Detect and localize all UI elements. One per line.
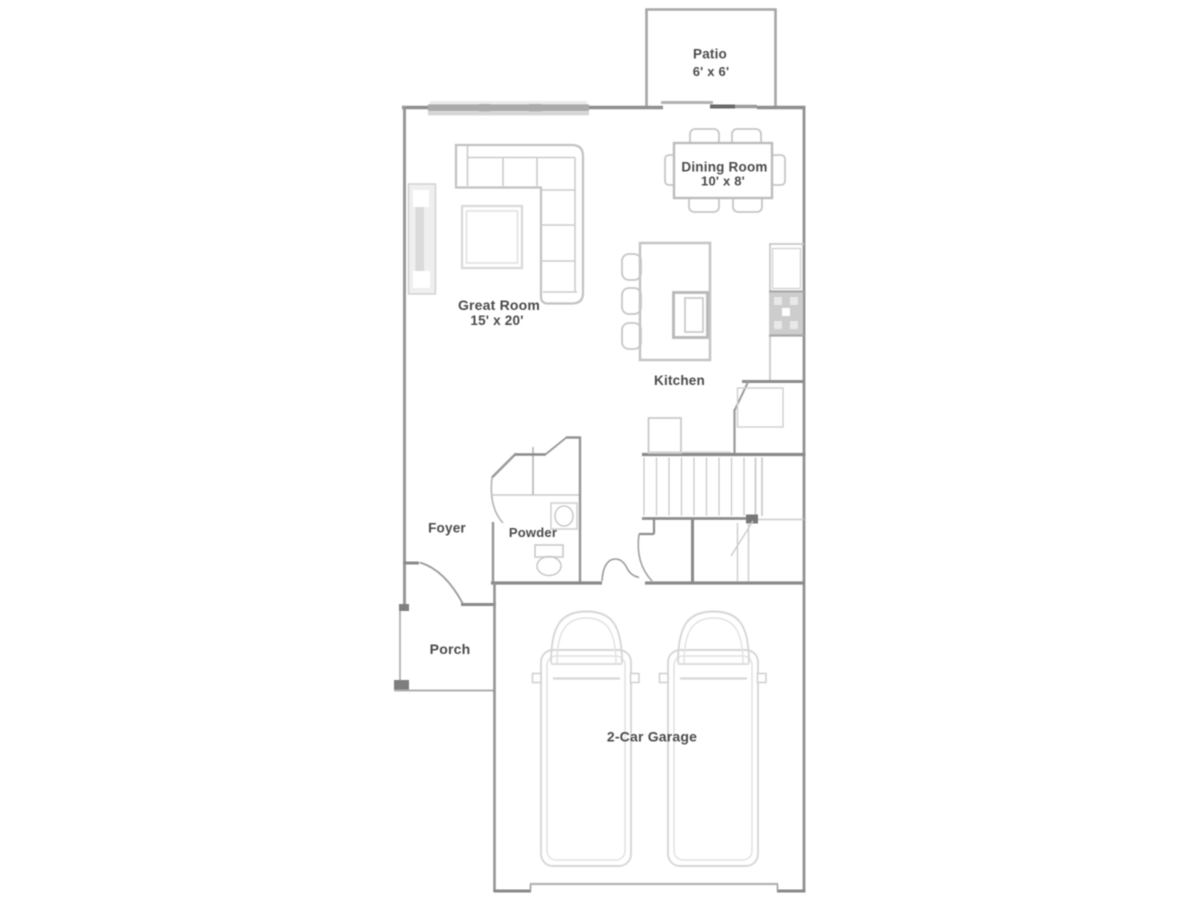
svg-text:Porch: Porch <box>430 641 471 657</box>
svg-text:Dining Room: Dining Room <box>681 160 767 175</box>
svg-text:15' x 20': 15' x 20' <box>470 313 523 328</box>
svg-text:Foyer: Foyer <box>428 521 466 536</box>
svg-text:Great Room: Great Room <box>458 297 540 313</box>
svg-text:Patio: Patio <box>693 47 727 62</box>
svg-text:2-Car Garage: 2-Car Garage <box>607 729 697 745</box>
svg-text:Kitchen: Kitchen <box>654 373 705 388</box>
svg-text:10' x 8': 10' x 8' <box>701 174 745 189</box>
svg-text:6' x 6': 6' x 6' <box>693 64 730 79</box>
svg-text:Powder: Powder <box>509 525 557 540</box>
